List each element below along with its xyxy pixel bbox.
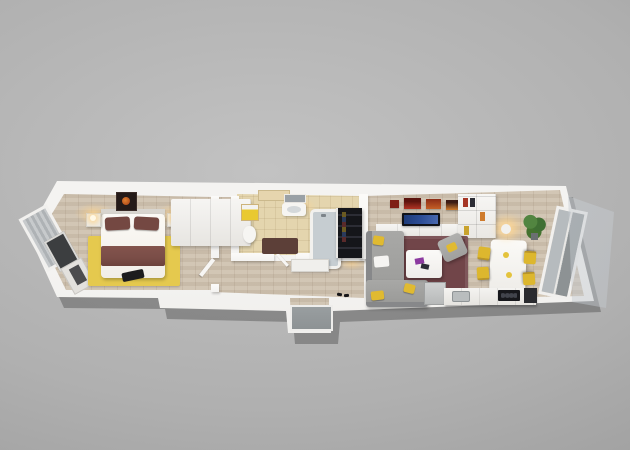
living-room-tv — [402, 213, 440, 226]
book — [464, 226, 469, 235]
living-wall-art-3 — [426, 199, 441, 209]
dining-chair — [523, 272, 536, 286]
living-wall-art-2 — [404, 198, 421, 209]
kitchen-sink — [452, 291, 470, 302]
bedroom-wall-art — [116, 192, 137, 211]
living-wall-art-1 — [390, 200, 399, 208]
bathroom-mirror — [284, 194, 306, 203]
pendant-lamp — [501, 224, 511, 234]
dining-chair — [477, 267, 490, 281]
shoe — [337, 293, 342, 297]
table-bowl — [503, 252, 509, 258]
kitchen-appliance — [524, 288, 537, 303]
hallway-console — [291, 259, 329, 272]
bath-mat — [262, 238, 298, 254]
wall-bathroom-bottom-left — [231, 253, 274, 261]
book — [463, 198, 468, 207]
bed-pillow-left — [105, 216, 131, 230]
washing-machine — [241, 204, 259, 221]
floorplan-render — [0, 0, 630, 450]
bedside-lamp-left — [90, 215, 96, 221]
book — [480, 212, 485, 221]
bathroom-sink — [282, 203, 306, 216]
sofa-cushion — [372, 235, 384, 245]
bed-blanket — [101, 246, 165, 266]
shoe — [344, 294, 349, 298]
book — [470, 198, 475, 207]
dining-table — [489, 239, 527, 292]
table-bowl — [506, 272, 512, 278]
sofa-throw — [374, 255, 390, 267]
fridge — [424, 282, 446, 305]
potted-plant — [522, 212, 546, 240]
bedroom-wardrobe — [171, 199, 251, 246]
sofa-cushion — [371, 290, 385, 300]
open-closet-unit — [336, 208, 362, 258]
wall-bedroom-corridor-lower — [211, 284, 219, 292]
toilet — [243, 226, 256, 243]
cooktop — [498, 290, 520, 301]
bed-pillow-right — [134, 216, 160, 230]
dining-chair — [524, 251, 537, 265]
entrance-door — [290, 305, 333, 331]
dining-chair — [477, 246, 491, 261]
